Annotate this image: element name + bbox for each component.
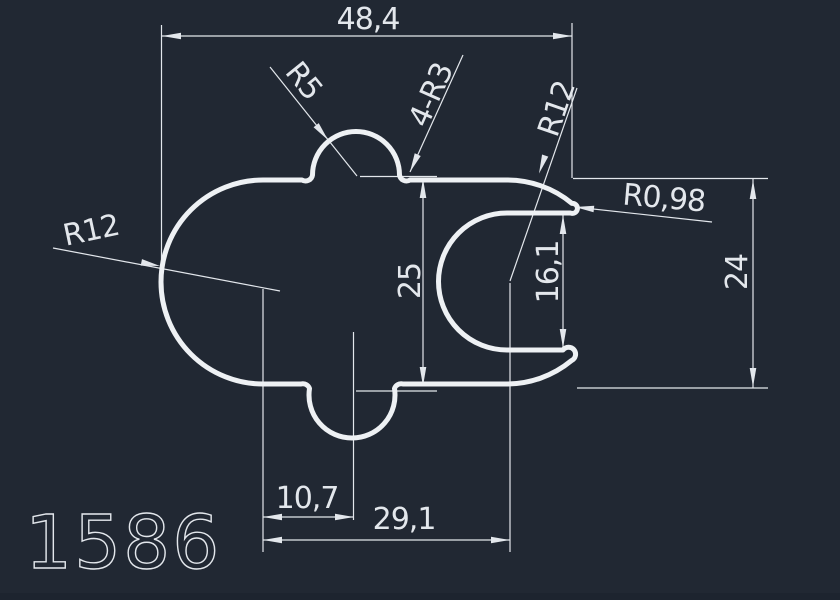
dim-offset-large xyxy=(263,537,510,544)
radius-text-r12-left: R12 xyxy=(60,208,122,254)
arrow-left-icon xyxy=(162,33,181,40)
arrow-right-icon xyxy=(553,33,572,40)
cad-viewport: 48,4 25 16,1 24 10,7 29,1 R5 4-R3 R12 R1… xyxy=(0,0,840,600)
arrow-up-icon xyxy=(750,180,757,199)
dim-overall-width xyxy=(162,23,573,277)
radius-text-r12-right: R12 xyxy=(531,77,582,141)
arrow-right-icon xyxy=(491,537,510,544)
dim-text-offset-large: 29,1 xyxy=(373,502,436,537)
dim-text-opening-height: 16,1 xyxy=(531,241,566,304)
radius-text-r0-98: R0,98 xyxy=(621,178,706,220)
profile-outline xyxy=(161,131,577,438)
arrow-down-icon xyxy=(560,329,567,348)
dim-text-body-height: 25 xyxy=(393,263,428,299)
arrow-down-icon xyxy=(750,368,757,387)
dim-text-right-height: 24 xyxy=(720,254,755,290)
arrow-icon xyxy=(407,153,421,173)
radius-text-4-r3: 4-R3 xyxy=(402,58,461,132)
bottom-shade xyxy=(0,593,840,600)
arrow-left-icon xyxy=(263,537,282,544)
arrow-up-icon xyxy=(560,215,567,234)
dim-text-offset-small: 10,7 xyxy=(276,481,339,516)
drawing-canvas: 48,4 25 16,1 24 10,7 29,1 R5 4-R3 R12 R1… xyxy=(0,0,840,600)
arrow-icon xyxy=(536,154,548,174)
dim-text-overall-width: 48,4 xyxy=(337,2,400,37)
part-number: 1586 xyxy=(25,500,221,586)
radius-text-r5: R5 xyxy=(278,55,329,107)
